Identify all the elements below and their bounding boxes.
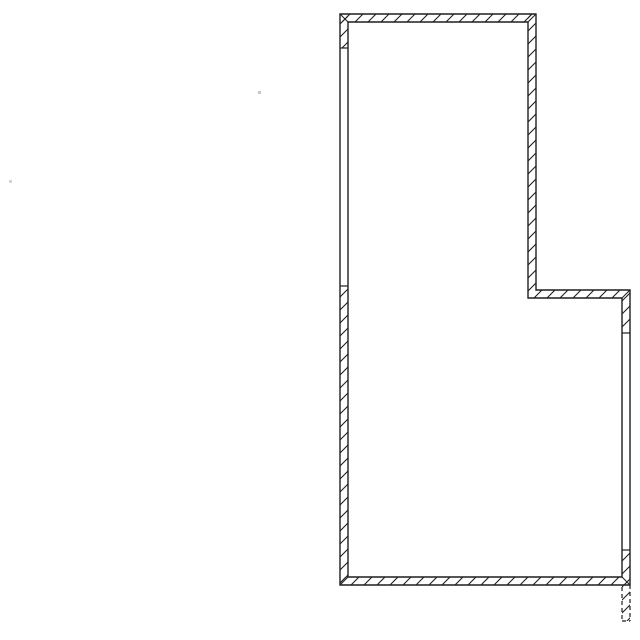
wall-hatch-hidden-stub-fill — [622, 585, 630, 621]
background — [0, 0, 640, 640]
wall-hatch-notch-wall — [528, 290, 630, 298]
wall-hatch-left-wall-upper-stub — [340, 14, 348, 48]
floor-plan-svg — [0, 0, 640, 640]
wall-hatch-right-wall-low — [622, 550, 630, 577]
wall-hatch-top-wall — [340, 14, 536, 22]
wall-hatch-right-wall-stub — [622, 298, 630, 333]
drawing-canvas — [0, 0, 640, 640]
wall-hatch-right-wall-upper — [528, 14, 536, 290]
wall-hatch-left-wall-lower — [340, 286, 348, 585]
wall-hatch-bottom-wall — [340, 577, 630, 585]
scan-speck — [9, 180, 12, 183]
page: { "drawing": { "title": "floor-plan-wall… — [0, 0, 640, 640]
scan-speck — [258, 91, 261, 94]
